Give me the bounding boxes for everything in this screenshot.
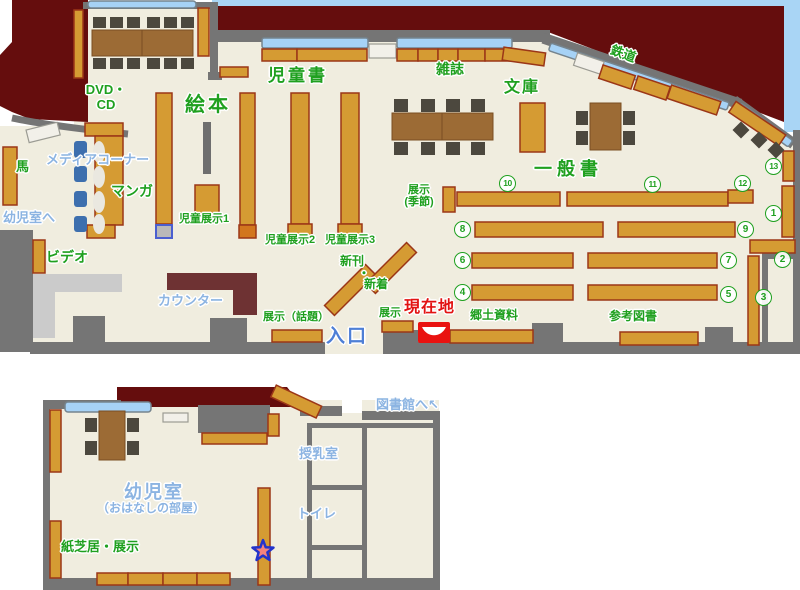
shelf-number-5: 5 bbox=[720, 286, 737, 303]
label-display: 展示 bbox=[379, 307, 401, 319]
label-childrens-books: 児童書 bbox=[268, 66, 328, 85]
shelf-number-12: 12 bbox=[734, 175, 751, 192]
current-location-marker bbox=[418, 322, 450, 343]
shelf-number-9: 9 bbox=[737, 221, 754, 238]
shelf-number-7: 7 bbox=[720, 252, 737, 269]
shelf-number-2: 2 bbox=[774, 251, 791, 268]
label-dvd-cd: DVD・ CD bbox=[82, 83, 130, 112]
shelf-number-13: 13 bbox=[765, 158, 782, 175]
label-kids-display-3: 児童展示3 bbox=[325, 234, 375, 246]
shelf-number-10: 10 bbox=[499, 175, 516, 192]
shelf-number-6: 6 bbox=[454, 252, 471, 269]
label-nursing-room: 授乳室 bbox=[299, 447, 338, 462]
to-library-arrow-icon: ↖ bbox=[428, 397, 439, 412]
label-counter: カウンター bbox=[158, 294, 223, 309]
label-picture-books: 絵本 bbox=[185, 94, 231, 116]
label-kamishibai-display: 紙芝居・展示 bbox=[61, 540, 139, 555]
label-video: ビデオ bbox=[46, 250, 88, 266]
manga-display-stand bbox=[156, 225, 172, 238]
shelf-number-1: 1 bbox=[765, 205, 782, 222]
label-horse-books: 馬 bbox=[16, 160, 29, 175]
label-new-arrivals-2: 新着 bbox=[364, 278, 388, 291]
label-storytelling-room: （おはなしの部屋） bbox=[97, 502, 205, 515]
ehon-display-bar bbox=[203, 122, 211, 174]
label-to-library: 図書館へ↖ bbox=[376, 398, 439, 413]
kids-room-table bbox=[99, 411, 125, 460]
label-seasonal-display: 展示 (季節) bbox=[396, 184, 442, 209]
label-entrance: 入口 bbox=[326, 326, 368, 347]
shelf-number-11: 11 bbox=[644, 176, 661, 193]
label-manga: マンガ bbox=[111, 184, 153, 200]
label-kids-display-1: 児童展示1 bbox=[179, 213, 229, 225]
to-library-text: 図書館へ bbox=[376, 397, 428, 412]
label-local-materials: 郷土資料 bbox=[470, 309, 518, 322]
label-kids-display-2: 児童展示2 bbox=[265, 234, 315, 246]
shelf-number-8: 8 bbox=[454, 221, 471, 238]
label-toilet: トイレ bbox=[297, 507, 336, 522]
shelf-number-3: 3 bbox=[755, 289, 772, 306]
label-bunko: 文庫 bbox=[504, 79, 540, 97]
label-general-books: 一 般 書 bbox=[534, 159, 598, 179]
label-topics-display: 展示（話題） bbox=[263, 311, 329, 323]
label-media-corner: メディアコーナー bbox=[46, 153, 149, 168]
label-magazines: 雑誌 bbox=[436, 62, 464, 78]
label-reference-books: 参考図書 bbox=[609, 310, 657, 323]
shelf-number-4: 4 bbox=[454, 284, 471, 301]
label-kids-room-title: 幼児室 bbox=[124, 482, 184, 502]
label-to-kids-room: 幼児室へ bbox=[3, 211, 55, 226]
library-floor-map: 児童書 絵本 雑誌 文庫 鉄道 一 般 書 DVD・ CD メディアコーナー マ… bbox=[0, 0, 800, 590]
general-books-table bbox=[590, 103, 621, 150]
label-current-location: 現在地 bbox=[404, 299, 455, 317]
